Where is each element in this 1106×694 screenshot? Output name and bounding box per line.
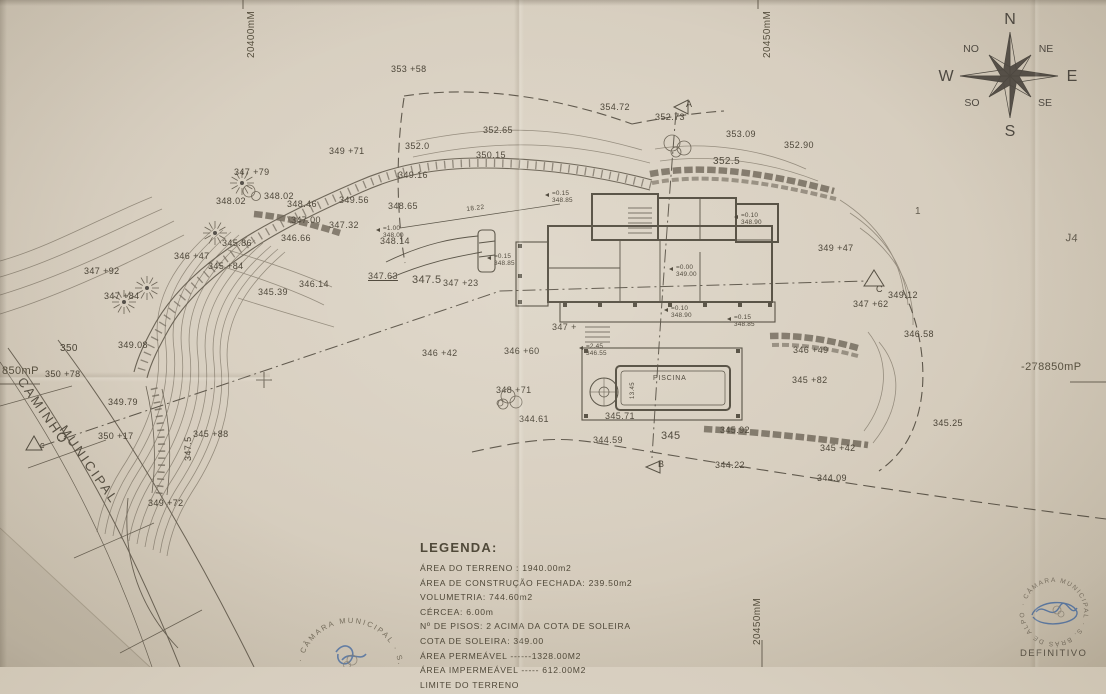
compass-n: N: [1004, 11, 1016, 28]
compass-e: E: [1067, 68, 1078, 85]
compass-s: S: [1005, 123, 1016, 140]
compass-se: SE: [1038, 97, 1052, 109]
dimension-line: [400, 204, 560, 228]
columns: [518, 244, 772, 418]
legend-item: CÉRCEA: 6.00m: [420, 607, 740, 617]
legend-item: VOLUMETRIA: 744.60m2: [420, 592, 740, 602]
site-plan-sheet: { "compass": {"n":"N","ne":"NE","e":"E",…: [0, 0, 1106, 667]
municipal-stamp-left: · CÂMARA MUNICIPAL · S. BRÁS DE ALPORTEL: [295, 616, 406, 667]
stamp-status: DEFINITIVO: [1020, 648, 1087, 659]
compass-so: SO: [964, 97, 979, 109]
legend: LEGENDA: ÁREA DO TERRENO : 1940.00m2ÁREA…: [420, 540, 740, 694]
legend-item: Nº DE PISOS: 2 ACIMA DA COTA DE SOLEIRA: [420, 621, 740, 631]
legend-items: ÁREA DO TERRENO : 1940.00m2ÁREA DE CONST…: [420, 563, 740, 690]
stone-walls: [254, 170, 868, 445]
property-boundary: [42, 92, 1106, 519]
compass-ne: NE: [1039, 43, 1054, 55]
legend-item: LIMITE DO TERRENO: [420, 680, 740, 690]
legend-item: ÁREA PERMEÁVEL ------1328.00M2: [420, 651, 740, 661]
compass-w: W: [938, 68, 954, 85]
building-footprint: [386, 194, 778, 420]
legend-title: LEGENDA:: [420, 540, 740, 555]
parked-car: [478, 230, 495, 272]
section-line-a-b: [652, 112, 676, 458]
pool: [616, 366, 730, 410]
shrubs: [243, 135, 691, 409]
section-marker-triangles: [26, 100, 884, 473]
registration-cross: [256, 372, 272, 388]
stairs: [628, 208, 652, 233]
interior-walls: [548, 198, 772, 302]
legend-item: COTA DE SOLEIRA: 349.00: [420, 636, 740, 646]
legend-item: ÁREA DE CONSTRUÇÃO FECHADA: 239.50m2: [420, 578, 740, 588]
section-line-c-c: [42, 281, 868, 446]
garden-stairs: [585, 322, 610, 342]
driveway: [386, 236, 482, 278]
scanned-paper-sheet: N S E W NE NO SE SO · CÂMARA MUNICIPAL ·…: [0, 0, 1106, 667]
compass-no: NO: [963, 43, 979, 55]
municipal-road: [0, 340, 254, 667]
south-veranda: [560, 302, 775, 322]
legend-item: ÁREA DO TERRENO : 1940.00m2: [420, 563, 740, 573]
